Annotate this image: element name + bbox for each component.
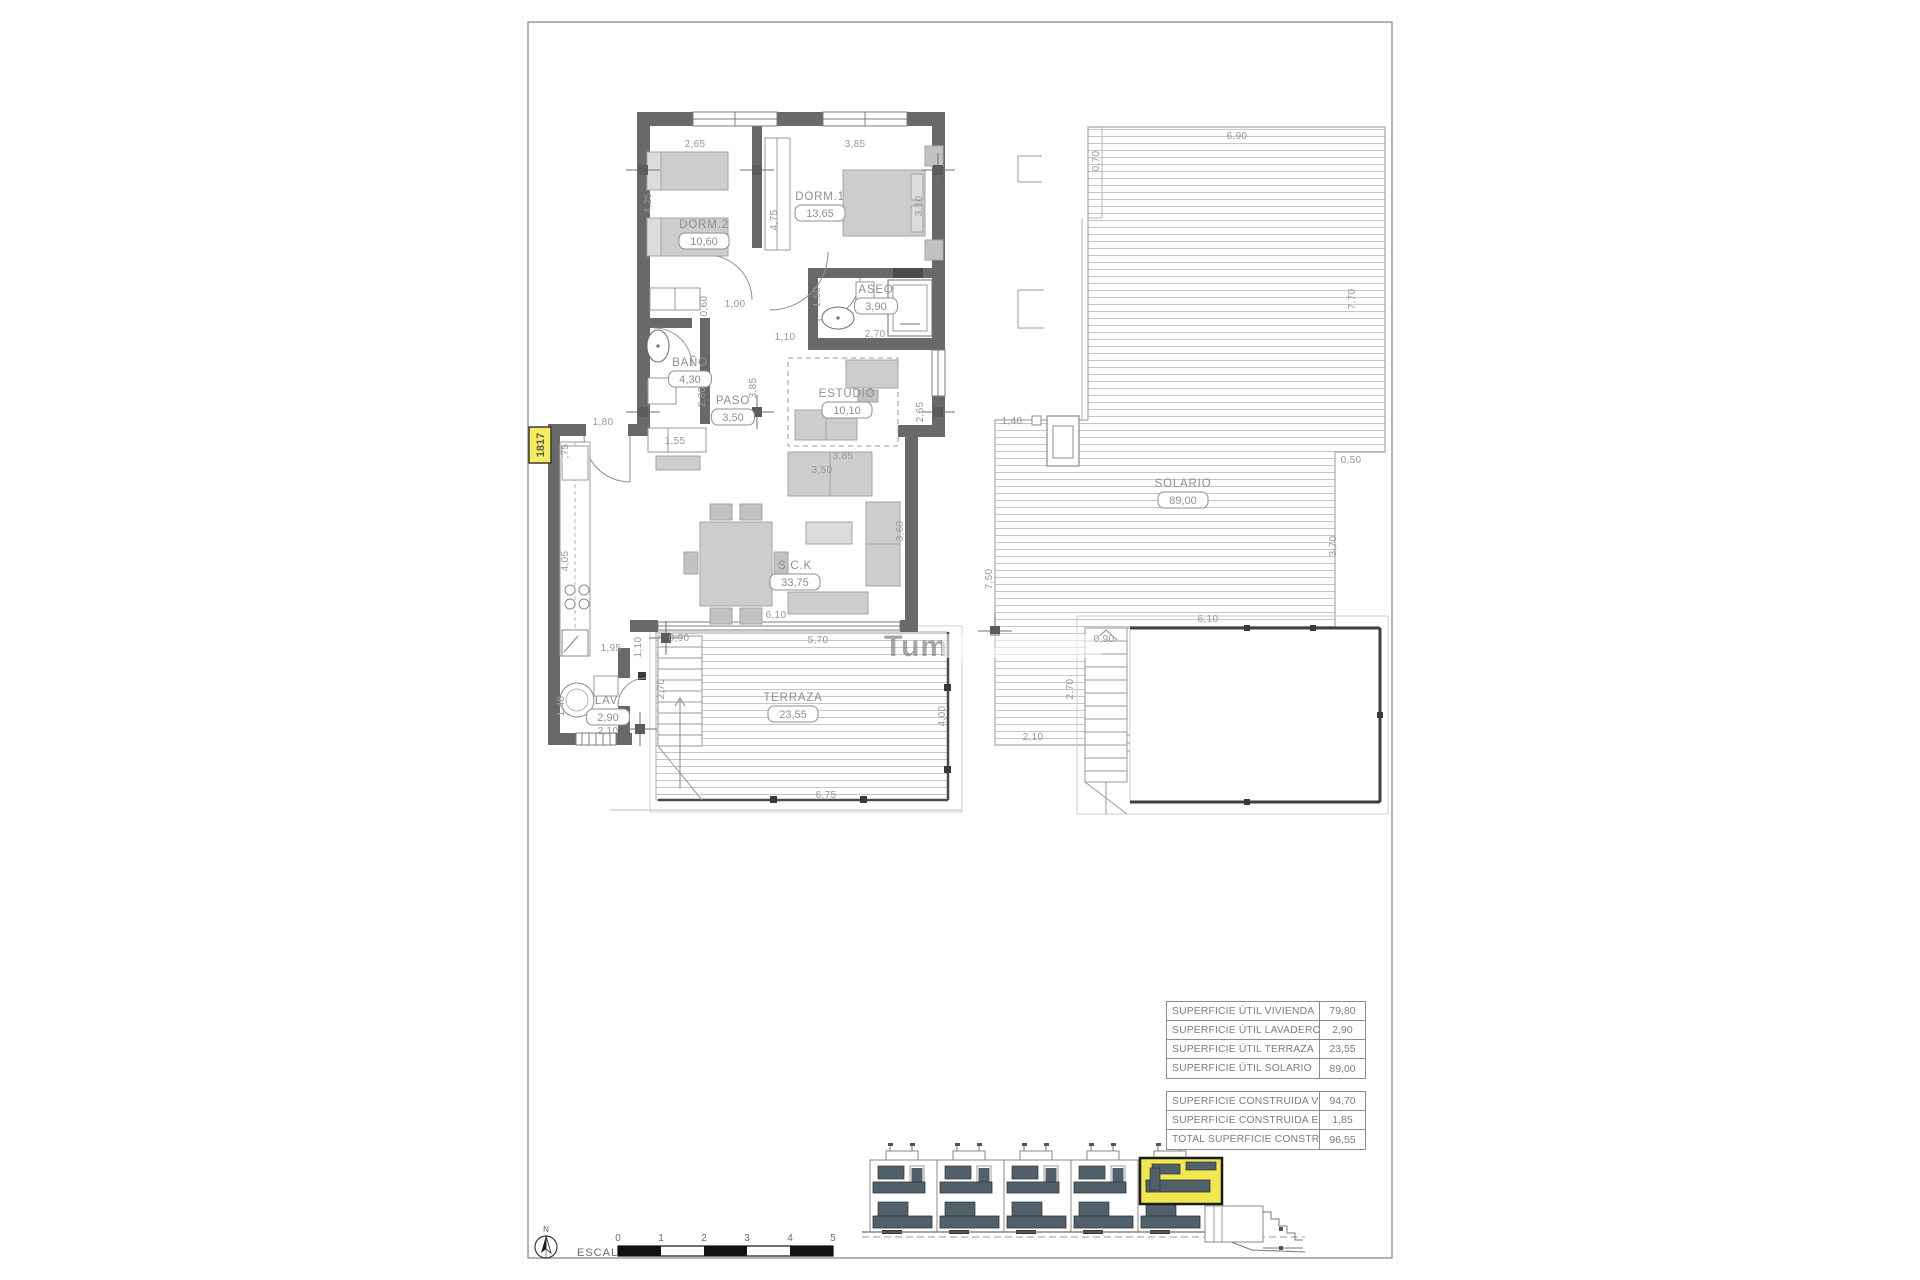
dimension-label: 2,80 [697,387,708,408]
table-row-label: SUPERFICIE ÚTIL SOLARIO [1167,1059,1319,1078]
dimension-label: 3,85 [833,451,854,462]
table-row: SUPERFICIE ÚTIL LAVADERO2,90 [1167,1021,1365,1040]
dimension-label: 4,25 [643,193,654,214]
table-row-label: SUPERFICIE ÚTIL VIVIENDA [1167,1002,1319,1020]
dimension-label: 2,65 [685,139,706,150]
highlighted-unit [1140,1158,1222,1204]
drawing-sheet: 1817 Tum N [0,0,1920,1280]
surface-tables: SUPERFICIE ÚTIL VIVIENDA79,80SUPERFICIE … [1166,1001,1366,1150]
dimension-label: 4,05 [560,551,571,572]
room-name: PASO [716,395,750,407]
room-area-value: 33,75 [781,577,809,589]
dimension-label: 1,40 [1002,416,1023,427]
table-row-label: SUPERFICIE CONSTRUIDA VIVIENDA [1167,1092,1319,1110]
scale-tick: 4 [787,1233,793,1244]
dimension-label: 0,90 [1094,634,1115,645]
dimension-label: 7,70 [1347,289,1358,310]
room-area-value: 3,50 [722,412,743,424]
dimension-label: 1,80 [593,417,614,428]
dimension-label: 3,60 [895,521,906,542]
table-row: TOTAL SUPERFICIE CONSTRUIDA96,55 [1167,1130,1365,1149]
dimension-label: 0,60 [699,296,710,317]
room-name: BAÑO [672,356,708,369]
dimension-label: 5,70 [808,635,829,646]
dimension-label: 0,50 [1341,455,1362,466]
dimension-label: 3,10 [914,196,925,217]
scale-ticks: 012345 [615,1233,836,1244]
dimension-label: 3,85 [845,139,866,150]
floorplan-svg: 1817 Tum N [0,0,1920,1280]
room-area-value: 13,65 [806,208,834,220]
room-area-value: 2,90 [597,712,618,724]
table-row-label: SUPERFICIE ÚTIL LAVADERO [1167,1021,1319,1039]
building-elevation [862,1143,1305,1252]
room-name: ESTUDIO [819,388,876,400]
dimension-label: 3,70 [1328,536,1339,557]
dimension-label: 4,75 [769,210,780,231]
dimension-label: 7,50 [984,569,995,590]
dimension-label: 3,50 [812,465,833,476]
dimension-label: 1,50 [812,287,823,308]
room-area-value: 23,55 [779,709,807,721]
dimension-label: 0,90 [669,633,690,644]
room-name: LAV. [595,695,621,707]
dimension-label: ,75 [560,443,571,458]
dimension-label: 1,00 [725,299,746,310]
dimension-label: 6,90 [1227,131,1248,142]
table-row: SUPERFICIE ÚTIL SOLARIO89,00 [1167,1059,1365,1078]
dimension-label: 2,70 [865,329,886,340]
table-row: SUPERFICIE CONSTRUIDA VIVIENDA94,70 [1167,1092,1365,1111]
dimension-label: 2,70 [656,679,667,700]
scale-bar: ESCALA : 012345 [577,1233,836,1259]
dimension-label: 6,10 [766,610,787,621]
scale-tick: 5 [830,1233,836,1244]
table-row: SUPERFICIE ÚTIL TERRAZA23,55 [1167,1040,1365,1059]
table-row: SUPERFICIE CONSTRUIDA EL.COMUNES1,85 [1167,1111,1365,1130]
watermark-text: Tum [884,630,948,663]
table-row-value: 79,80 [1319,1002,1365,1020]
table-row-value: 23,55 [1319,1040,1365,1058]
table-row-label: TOTAL SUPERFICIE CONSTRUIDA [1167,1130,1319,1149]
room-area-value: 3,90 [865,301,886,313]
dimension-label: 2,70 [1065,679,1076,700]
room-name: SOLARIO [1155,478,1212,490]
scale-tick: 1 [658,1233,664,1244]
room-area-value: 4,30 [679,374,700,386]
dimension-label: 6,10 [1198,614,1219,625]
room-name: ASEO [858,284,893,296]
dimension-label: 4,00 [937,706,948,727]
room-name: TERRAZA [763,692,822,704]
room-name: DORM.2 [679,219,729,231]
dimension-label: 6,75 [816,790,837,801]
table-row-value: 96,55 [1319,1130,1365,1149]
solario-stairs [1077,616,1388,814]
unit-tag-text: 1817 [535,433,547,457]
dimension-label: 2,10 [1023,732,1044,743]
scale-tick: 0 [615,1233,621,1244]
table-row-value: 1,85 [1319,1111,1365,1129]
table-row-label: SUPERFICIE ÚTIL TERRAZA [1167,1040,1319,1058]
dimension-label: 2,65 [915,402,926,423]
dimension-label: 2,10 [598,726,619,737]
dimension-label: 1,40 [556,696,567,717]
table-superficie-construida: SUPERFICIE CONSTRUIDA VIVIENDA94,70SUPER… [1166,1091,1366,1150]
table-row-value: 2,90 [1319,1021,1365,1039]
room-area-value: 10,60 [690,236,718,248]
table-row-label: SUPERFICIE CONSTRUIDA EL.COMUNES [1167,1111,1319,1129]
room-area-value: 10,10 [833,405,861,417]
scale-tick: 2 [701,1233,707,1244]
room-area-value: 89,00 [1169,495,1197,507]
dimension-label: 0,70 [1091,151,1102,172]
dimension-label: 1,95 [601,643,622,654]
scale-tick: 3 [744,1233,750,1244]
north-compass: N [535,1225,557,1258]
dimension-label: 1,10 [633,637,644,658]
table-row-value: 89,00 [1319,1059,1365,1078]
room-name: DORM.1 [795,191,845,203]
room-name: S.C.K [778,560,812,572]
unit-tag: 1817 [529,427,551,463]
table-row: SUPERFICIE ÚTIL VIVIENDA79,80 [1167,1002,1365,1021]
table-superficie-util: SUPERFICIE ÚTIL VIVIENDA79,80SUPERFICIE … [1166,1001,1366,1079]
dimension-label: 1,10 [775,332,796,343]
north-label: N [543,1225,549,1234]
table-row-value: 94,70 [1319,1092,1365,1110]
dimension-label: 1,55 [665,436,686,447]
